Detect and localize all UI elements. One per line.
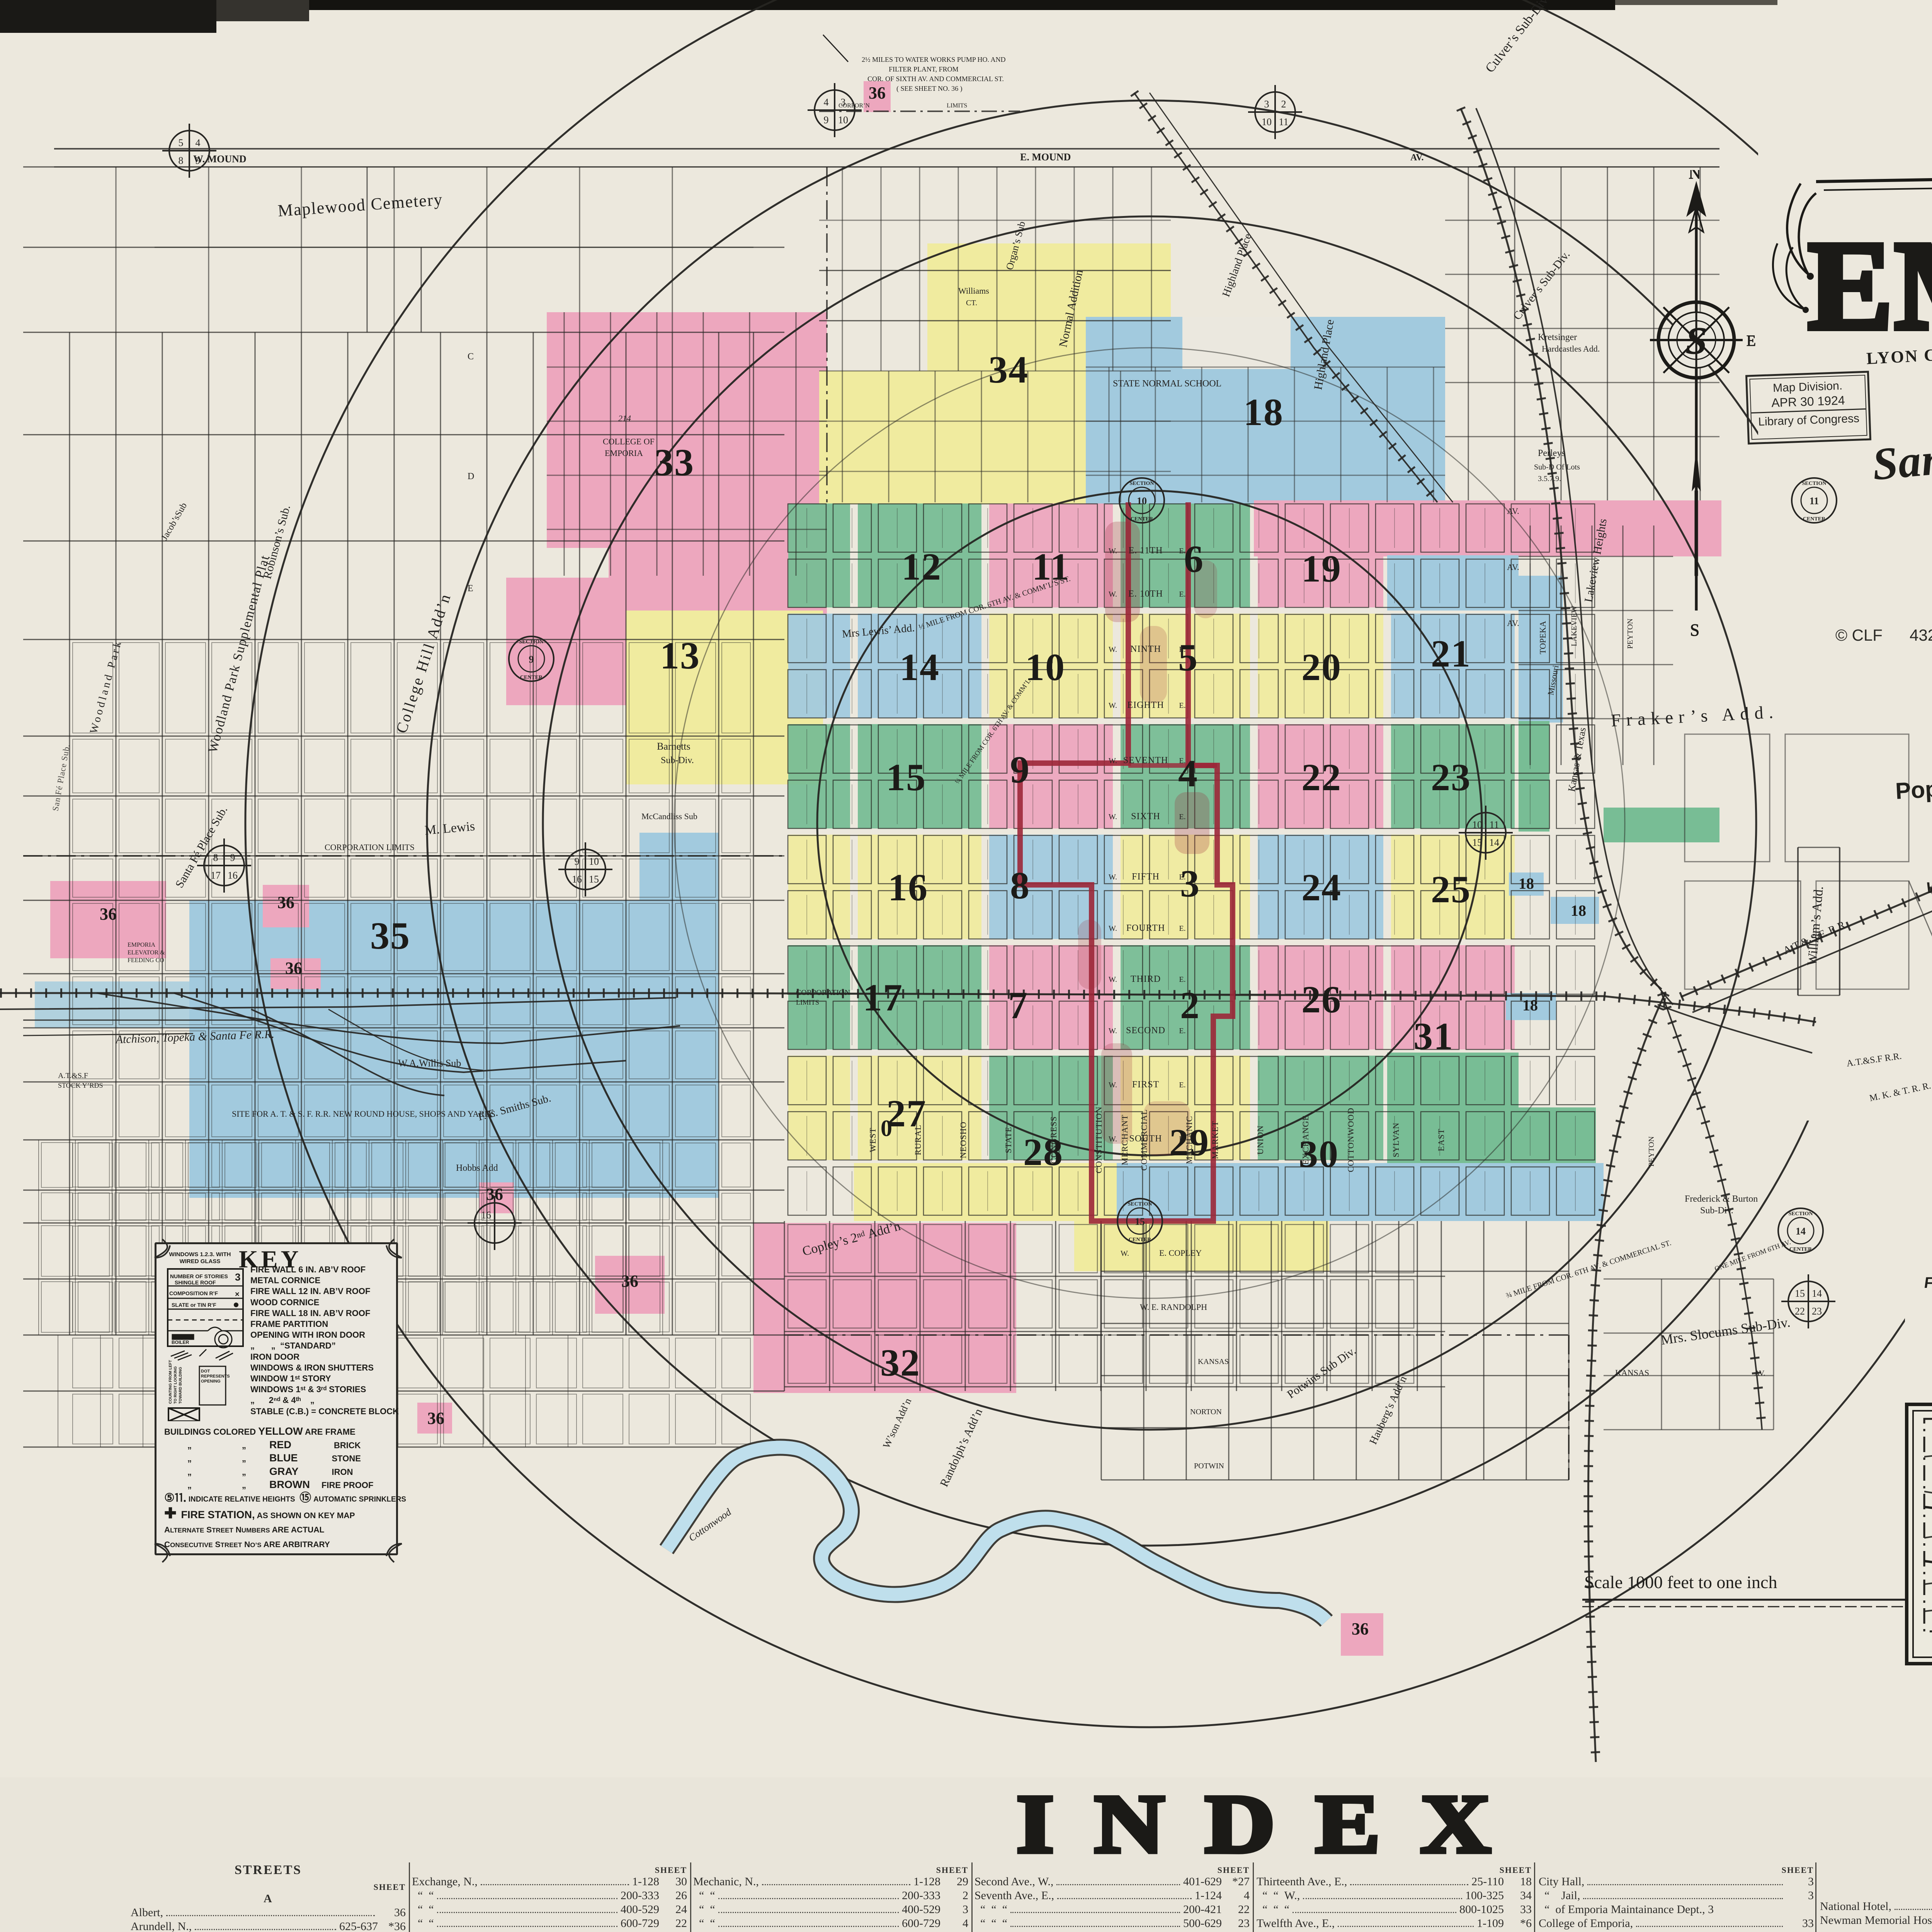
svg-text:W.: W. [1109, 1027, 1117, 1035]
svg-text:Barnetts: Barnetts [657, 741, 690, 752]
svg-text:REPRESENTS: REPRESENTS [201, 1374, 230, 1379]
svg-text:TOPEKA: TOPEKA [1538, 621, 1548, 654]
svg-text:DOT: DOT [201, 1369, 210, 1374]
svg-text:EMPORIA: EMPORIA [128, 942, 155, 948]
svg-text:16: 16 [228, 870, 238, 881]
svg-text:21: 21 [1431, 632, 1471, 675]
svg-text:SECTION: SECTION [1128, 1201, 1152, 1207]
svg-text:14: 14 [1812, 1288, 1822, 1299]
svg-text:Sub-Div.: Sub-Div. [661, 755, 694, 765]
svg-text:3: 3 [1180, 862, 1200, 905]
svg-text:23: 23 [1812, 1306, 1822, 1317]
svg-text:SEVENTH: SEVENTH [1123, 755, 1168, 765]
svg-text:POTWIN: POTWIN [1194, 1462, 1224, 1470]
svg-text:Perleys: Perleys [1538, 448, 1565, 458]
svg-text:33: 33 [654, 441, 694, 484]
svg-text:SIXTH: SIXTH [1131, 811, 1160, 821]
svg-text:TO RIGHT LOOKING: TO RIGHT LOOKING [173, 1366, 178, 1404]
svg-text:34: 34 [988, 348, 1029, 391]
svg-text:SECTION: SECTION [519, 639, 543, 645]
svg-text:W.: W. [1121, 1249, 1129, 1258]
svg-text:RURAL: RURAL [913, 1124, 923, 1155]
svg-text:Kretsinger: Kretsinger [1538, 332, 1577, 342]
svg-text:CT.: CT. [966, 299, 977, 307]
svg-text:E.: E. [1179, 813, 1185, 821]
svg-text:7: 7 [1008, 984, 1028, 1027]
svg-text:AV.: AV. [1410, 153, 1423, 163]
svg-text:W.A.Willis Sub: W.A.Willis Sub [398, 1058, 461, 1069]
svg-text:11: 11 [1279, 116, 1288, 128]
svg-text:STATE: STATE [1003, 1126, 1013, 1153]
svg-text:THIRD: THIRD [1131, 974, 1161, 984]
svg-text:E. 10TH: E. 10TH [1128, 589, 1163, 599]
svg-text:16: 16 [888, 866, 928, 909]
svg-text:4: 4 [196, 137, 201, 148]
svg-text:COUNTING FROM LEFT: COUNTING FROM LEFT [168, 1360, 173, 1404]
svg-text:36: 36 [427, 1409, 444, 1428]
svg-text:CENTER: CENTER [1789, 1247, 1812, 1252]
svg-text:9: 9 [824, 114, 829, 126]
svg-text:( SEE SHEET NO. 36 ): ( SEE SHEET NO. 36 ) [896, 85, 963, 93]
svg-text:SECOND: SECOND [1126, 1026, 1165, 1036]
svg-text:COR. OF SIXTH AV. AND COMMERCI: COR. OF SIXTH AV. AND COMMERCIAL ST. [867, 75, 1004, 83]
svg-text:Williams: Williams [958, 286, 989, 296]
svg-text:NUMBER OF STORIES: NUMBER OF STORIES [170, 1273, 228, 1279]
svg-text:Hardcastles Add.: Hardcastles Add. [1542, 344, 1600, 354]
svg-text:E. 11TH: E. 11TH [1129, 546, 1163, 556]
svg-text:W.: W. [1109, 924, 1117, 933]
svg-text:D: D [468, 471, 474, 481]
svg-text:20: 20 [1301, 646, 1342, 689]
svg-text:LAKEVIEW: LAKEVIEW [1570, 605, 1578, 646]
svg-text:PEYTON: PEYTON [1647, 1136, 1656, 1167]
svg-text:18: 18 [1243, 391, 1284, 434]
svg-text:2½ MILES TO WATER WORKS PUMP H: 2½ MILES TO WATER WORKS PUMP HO. AND [862, 56, 1006, 63]
svg-text:E.: E. [1179, 975, 1185, 984]
svg-text:4: 4 [824, 97, 829, 108]
svg-text:W.: W. [1109, 1135, 1117, 1143]
svg-text:214: 214 [618, 413, 631, 423]
svg-text:17: 17 [863, 976, 903, 1019]
svg-text:9: 9 [529, 654, 534, 665]
svg-text:EXCHANGE: EXCHANGE [1301, 1115, 1310, 1165]
svg-text:EMPORIA: EMPORIA [1808, 215, 1932, 356]
svg-text:NINTH: NINTH [1130, 644, 1161, 654]
svg-text:BOILER: BOILER [172, 1340, 189, 1345]
svg-text:9: 9 [196, 155, 201, 166]
svg-text:10: 10 [838, 114, 848, 126]
svg-text:15: 15 [1795, 1288, 1805, 1299]
svg-text:NEOSHO: NEOSHO [958, 1121, 968, 1158]
svg-text:COTTONWOOD: COTTONWOOD [1346, 1107, 1355, 1172]
svg-text:13: 13 [660, 634, 700, 677]
svg-text:OPENING: OPENING [201, 1379, 221, 1384]
svg-text:3: 3 [1264, 99, 1269, 110]
svg-text:14: 14 [1489, 837, 1499, 848]
svg-text:9: 9 [230, 852, 235, 863]
svg-text:SITE FOR A. T. & S. F. R.R. NE: SITE FOR A. T. & S. F. R.R. NEW ROUND HO… [232, 1109, 495, 1119]
svg-text:2: 2 [1281, 99, 1286, 110]
svg-text:E.: E. [1179, 701, 1185, 710]
svg-text:16: 16 [572, 874, 582, 885]
svg-text:E.: E. [1179, 1027, 1185, 1035]
svg-text:CENTER: CENTER [1803, 516, 1826, 522]
svg-text:SHINGLE ROOF: SHINGLE ROOF [175, 1279, 216, 1286]
svg-text:0: 0 [881, 1116, 893, 1141]
svg-text:E.: E. [1179, 757, 1185, 765]
svg-text:Scale 1000 feet to one inch: Scale 1000 feet to one inch [1584, 1572, 1777, 1592]
svg-text:STATE NORMAL SCHOOL: STATE NORMAL SCHOOL [1113, 379, 1221, 389]
svg-text:FIRST: FIRST [1132, 1080, 1159, 1090]
svg-text:9: 9 [575, 856, 580, 867]
svg-text:LIMITS: LIMITS [796, 998, 819, 1006]
svg-text:AV.: AV. [1507, 562, 1519, 572]
svg-text:14: 14 [900, 646, 940, 689]
svg-text:11: 11 [1489, 819, 1499, 830]
svg-text:Frederick & Burton: Frederick & Burton [1685, 1194, 1758, 1204]
svg-text:ELEVATOR &: ELEVATOR & [128, 949, 165, 956]
svg-text:18: 18 [1571, 902, 1586, 919]
svg-text:15: 15 [1472, 837, 1482, 848]
svg-text:SECTION: SECTION [1788, 1211, 1813, 1217]
svg-text:KANSAS: KANSAS [1198, 1357, 1229, 1366]
svg-text:3: 3 [235, 1271, 240, 1283]
svg-text:COLLEGE OF: COLLEGE OF [603, 437, 655, 446]
svg-text:W.: W. [1109, 757, 1117, 765]
svg-text:36: 36 [1352, 1619, 1369, 1638]
svg-text:E. COPLEY: E. COPLEY [1159, 1248, 1202, 1258]
svg-text:5: 5 [1178, 636, 1198, 679]
svg-text:35: 35 [370, 914, 410, 957]
svg-text:W.: W. [1109, 873, 1117, 881]
svg-text:E: E [468, 583, 473, 594]
svg-text:EAST: EAST [1436, 1129, 1446, 1151]
svg-text:17: 17 [211, 870, 221, 881]
svg-text:SLATE or TIN R’F: SLATE or TIN R’F [172, 1302, 216, 1308]
svg-text:15: 15 [589, 874, 599, 885]
svg-text:12: 12 [901, 545, 942, 588]
svg-text:16: 16 [481, 1209, 491, 1221]
svg-text:15: 15 [1135, 1216, 1145, 1227]
svg-text:10: 10 [589, 856, 599, 867]
svg-text:AV.: AV. [1507, 506, 1519, 516]
svg-text:E.: E. [1179, 590, 1185, 599]
svg-text:22: 22 [1301, 756, 1342, 799]
svg-text:FEEDING CO: FEEDING CO [128, 957, 164, 964]
svg-text:31: 31 [1413, 1015, 1454, 1058]
svg-text:EMPORIA: EMPORIA [605, 448, 643, 458]
svg-text:N: N [1689, 170, 1701, 182]
svg-text:10: 10 [1262, 116, 1272, 128]
svg-text:FIFTH: FIFTH [1132, 872, 1160, 882]
svg-text:5: 5 [179, 137, 184, 148]
svg-text:18: 18 [1522, 997, 1538, 1014]
svg-text:11: 11 [1810, 495, 1819, 507]
svg-text:32: 32 [880, 1341, 920, 1384]
svg-text:3.5.7.9.: 3.5.7.9. [1538, 474, 1561, 483]
svg-text:15: 15 [886, 756, 926, 799]
svg-text:CORPORATION LIMITS: CORPORATION LIMITS [325, 842, 415, 852]
svg-text:8: 8 [1010, 864, 1030, 907]
svg-text:SYLVAN: SYLVAN [1391, 1122, 1401, 1157]
svg-text:36: 36 [285, 959, 302, 978]
svg-text:23: 23 [1431, 756, 1471, 799]
svg-text:SECTION: SECTION [1802, 481, 1826, 486]
svg-text:W. MOUND: W. MOUND [193, 153, 247, 165]
svg-text:18: 18 [1519, 875, 1534, 892]
svg-text:W.: W. [1109, 590, 1117, 599]
svg-text:25: 25 [1431, 868, 1471, 911]
svg-text:SOUTH: SOUTH [1129, 1134, 1162, 1144]
svg-text:W.: W. [1109, 1081, 1117, 1089]
svg-text:AV.: AV. [1754, 1369, 1765, 1378]
svg-text:W.: W. [1109, 547, 1117, 555]
svg-text:Sub-D Of Lots: Sub-D Of Lots [1534, 463, 1580, 471]
svg-text:6: 6 [1184, 537, 1204, 580]
svg-text:MECHANIC: MECHANIC [1184, 1116, 1194, 1164]
svg-text:S: S [1690, 621, 1699, 639]
svg-text:W.: W. [1109, 975, 1117, 984]
svg-text:36: 36 [621, 1272, 638, 1291]
svg-text:CENTER: CENTER [520, 675, 543, 680]
svg-text:26: 26 [1301, 978, 1342, 1021]
svg-text:E.: E. [1179, 1135, 1185, 1143]
svg-text:2: 2 [1180, 984, 1200, 1027]
svg-text:24: 24 [1301, 866, 1342, 909]
svg-text:McCandliss Sub: McCandliss Sub [641, 811, 697, 821]
svg-text:10: 10 [1472, 819, 1482, 830]
svg-text:A.T.&S.F: A.T.&S.F [58, 1071, 88, 1080]
svg-text:FILTER PLANT, FROM: FILTER PLANT, FROM [889, 65, 959, 73]
svg-text:KANSAS: KANSAS [1615, 1368, 1649, 1378]
svg-text:FOURTH: FOURTH [1126, 923, 1165, 933]
svg-text:UNION: UNION [1255, 1125, 1265, 1155]
svg-text:STOCK Y’RDS: STOCK Y’RDS [58, 1082, 103, 1089]
svg-text:8: 8 [179, 155, 184, 166]
svg-text:9: 9 [1010, 748, 1030, 791]
svg-text:E. MOUND: E. MOUND [1020, 151, 1071, 163]
svg-text:E: E [1747, 332, 1756, 349]
svg-text:NORTON: NORTON [1190, 1408, 1222, 1416]
svg-text:W. E. RANDOLPH: W. E. RANDOLPH [1140, 1302, 1207, 1312]
svg-text:MARKET: MARKET [1210, 1121, 1220, 1159]
svg-text:E.: E. [1179, 924, 1185, 933]
svg-text:E.: E. [1179, 547, 1185, 555]
svg-text:Sub-Div.: Sub-Div. [1700, 1206, 1733, 1216]
svg-text:36: 36 [100, 905, 117, 923]
svg-text:MERCHANT: MERCHANT [1120, 1114, 1129, 1165]
svg-text:8: 8 [213, 852, 218, 863]
svg-text:×: × [235, 1290, 240, 1299]
svg-text:C: C [468, 352, 474, 362]
svg-text:E.: E. [1179, 645, 1185, 654]
svg-text:E.: E. [1179, 873, 1185, 881]
svg-text:COMPOSITION R’F: COMPOSITION R’F [169, 1290, 218, 1296]
svg-text:E.: E. [1179, 1081, 1185, 1089]
svg-text:36: 36 [277, 893, 294, 912]
svg-text:19: 19 [1301, 547, 1342, 590]
svg-text:W.: W. [1109, 813, 1117, 821]
svg-text:22: 22 [1795, 1306, 1805, 1317]
svg-text:PEYTON: PEYTON [1626, 619, 1634, 649]
svg-text:WEST: WEST [868, 1128, 878, 1152]
svg-text:CONSTITUTION: CONSTITUTION [1094, 1106, 1104, 1173]
svg-text:CENTER: CENTER [1131, 516, 1153, 522]
svg-text:W.: W. [1109, 645, 1117, 654]
svg-text:AV.: AV. [1507, 618, 1519, 628]
svg-text:14: 14 [1796, 1226, 1806, 1237]
svg-text:EIGHTH: EIGHTH [1127, 700, 1164, 710]
svg-text:3: 3 [841, 97, 846, 108]
svg-text:TOWARD BUILDING: TOWARD BUILDING [179, 1367, 183, 1404]
svg-text:10: 10 [1137, 495, 1147, 507]
svg-text:Hobbs Add: Hobbs Add [456, 1163, 498, 1173]
svg-text:36: 36 [869, 83, 886, 102]
svg-text:LIMITS: LIMITS [947, 102, 967, 109]
svg-text:W.: W. [1109, 701, 1117, 710]
svg-text:CONGRESS: CONGRESS [1049, 1116, 1058, 1164]
svg-text:CORPORATION: CORPORATION [796, 988, 850, 997]
svg-text:SECTION: SECTION [1129, 481, 1154, 486]
svg-text:STEAM: STEAM [172, 1334, 188, 1340]
svg-text:CENTER: CENTER [1129, 1237, 1151, 1243]
